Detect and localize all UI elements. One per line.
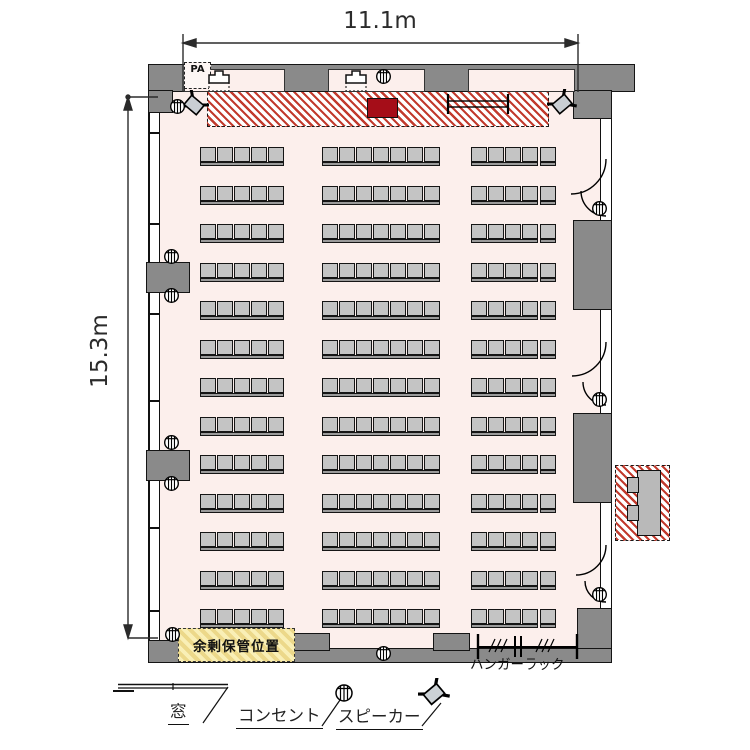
seat [505, 147, 521, 162]
seat [390, 532, 406, 547]
legend-outlet-label: コンセント [236, 702, 323, 729]
seat-table-bar [200, 201, 284, 205]
seat [488, 532, 504, 547]
seat [471, 609, 487, 624]
seat [217, 532, 233, 547]
seat-row-center [322, 186, 440, 205]
seat-row-center [322, 609, 440, 628]
seat [217, 340, 233, 355]
seat [407, 455, 423, 470]
seat [234, 186, 250, 201]
seat-table-bar [540, 393, 556, 397]
seat [390, 378, 406, 393]
seat-row-left [200, 147, 284, 166]
seat [522, 263, 538, 278]
seat [522, 340, 538, 355]
projector-icon [206, 68, 236, 94]
seat [471, 147, 487, 162]
outlet-icon [164, 626, 181, 643]
seat [322, 571, 338, 586]
seat [217, 571, 233, 586]
seat [390, 224, 406, 239]
seat [234, 224, 250, 239]
seat [339, 494, 355, 509]
seat [471, 378, 487, 393]
storage-label: 余剰保管位置 [193, 635, 280, 655]
seat [268, 417, 284, 432]
seat [356, 455, 372, 470]
seat [217, 263, 233, 278]
seat [373, 186, 389, 201]
dimension-width-label: 11.1m [330, 8, 430, 34]
seat [424, 301, 440, 316]
seat-table-bar [471, 278, 538, 282]
seat [390, 571, 406, 586]
seat [471, 571, 487, 586]
seat [522, 417, 538, 432]
seat [488, 609, 504, 624]
seat [390, 340, 406, 355]
legend-window-label: 窓 [168, 698, 189, 725]
seat-row-center [322, 417, 440, 436]
seat [322, 532, 338, 547]
seat-table-bar [322, 509, 440, 513]
seat [339, 532, 355, 547]
seat-table-bar [322, 432, 440, 436]
seat [471, 417, 487, 432]
seat [200, 340, 216, 355]
seat-row-right [471, 186, 556, 205]
outlet-icon [163, 434, 180, 451]
seat-table-bar [200, 547, 284, 551]
seat [390, 417, 406, 432]
seat [424, 147, 440, 162]
seat [200, 301, 216, 316]
seat [373, 494, 389, 509]
seat [322, 301, 338, 316]
seat [390, 494, 406, 509]
seat [251, 340, 267, 355]
seat [373, 417, 389, 432]
seat-row-left [200, 455, 284, 474]
seat [322, 417, 338, 432]
seat [373, 378, 389, 393]
seat [471, 340, 487, 355]
seat [200, 494, 216, 509]
seat [407, 147, 423, 162]
seat [471, 494, 487, 509]
seat [251, 609, 267, 624]
seat [217, 224, 233, 239]
seat [505, 455, 521, 470]
seat-row-center [322, 571, 440, 590]
seat [322, 224, 338, 239]
seat [407, 378, 423, 393]
seat-row-center [322, 340, 440, 359]
seat-table-bar [200, 586, 284, 590]
seat [200, 455, 216, 470]
seat [488, 494, 504, 509]
seat [505, 609, 521, 624]
seat [424, 224, 440, 239]
seat [268, 532, 284, 547]
seat [356, 301, 372, 316]
seat-row-right [471, 224, 556, 243]
seat [522, 147, 538, 162]
seat-table-bar [471, 201, 538, 205]
seat-row-left [200, 417, 284, 436]
seat [471, 186, 487, 201]
seat-row-left [200, 609, 284, 628]
seat-table-bar [200, 278, 284, 282]
seat [356, 224, 372, 239]
seat-row-center [322, 224, 440, 243]
seat [505, 417, 521, 432]
seat-row-right [471, 494, 556, 513]
seat [322, 609, 338, 624]
seat [488, 378, 504, 393]
seat [505, 301, 521, 316]
seat [390, 301, 406, 316]
seat [217, 378, 233, 393]
seat [217, 609, 233, 624]
seat [488, 417, 504, 432]
outlet-icon [169, 98, 186, 115]
seat [471, 455, 487, 470]
seat [200, 378, 216, 393]
seat [339, 571, 355, 586]
seat [373, 301, 389, 316]
seat-row-right [471, 532, 556, 551]
seat-row-left [200, 301, 284, 320]
seat [471, 301, 487, 316]
seat-table-bar [540, 586, 556, 590]
seat [200, 417, 216, 432]
seat [505, 378, 521, 393]
seat [424, 455, 440, 470]
seat [488, 340, 504, 355]
legend-speaker-label: スピーカー [336, 703, 423, 730]
seat [268, 609, 284, 624]
seat [390, 147, 406, 162]
seat [488, 263, 504, 278]
seat [322, 340, 338, 355]
seat-row-center [322, 455, 440, 474]
storage-area: 余剰保管位置 [178, 628, 295, 662]
seat [407, 532, 423, 547]
seat [522, 186, 538, 201]
seat [234, 417, 250, 432]
seat [200, 571, 216, 586]
seat [268, 571, 284, 586]
seat [356, 494, 372, 509]
hanger-rack-tab [627, 477, 639, 493]
seat [540, 532, 556, 547]
seat [268, 147, 284, 162]
seat [268, 263, 284, 278]
seat [251, 186, 267, 201]
outlet-icon [375, 645, 392, 662]
seat-row-right [471, 609, 556, 628]
hanger-rack-tab [627, 505, 639, 521]
seat [234, 571, 250, 586]
seat [339, 147, 355, 162]
seat [424, 417, 440, 432]
seat [339, 417, 355, 432]
seat [356, 147, 372, 162]
seat [373, 340, 389, 355]
seat-table-bar [471, 393, 538, 397]
outlet-icon [375, 68, 392, 85]
seat [217, 455, 233, 470]
seat-table-bar [200, 509, 284, 513]
seat-table-bar [540, 201, 556, 205]
seat [322, 378, 338, 393]
seat [424, 494, 440, 509]
seat [540, 147, 556, 162]
seat [200, 263, 216, 278]
seat [234, 147, 250, 162]
seat-row-left [200, 263, 284, 282]
seat [488, 571, 504, 586]
seat [407, 340, 423, 355]
seat [540, 609, 556, 624]
seat [505, 224, 521, 239]
projector-icon [343, 68, 373, 94]
seat-table-bar [540, 547, 556, 551]
seat [540, 301, 556, 316]
seat [268, 378, 284, 393]
seat [488, 224, 504, 239]
seat-table-bar [540, 355, 556, 359]
seat-table-bar [471, 547, 538, 551]
seat [540, 224, 556, 239]
seat [268, 340, 284, 355]
seat [505, 186, 521, 201]
seat [268, 186, 284, 201]
seat [234, 263, 250, 278]
dimension-height-label: 15.3m [87, 304, 113, 398]
seat [424, 340, 440, 355]
seat [540, 571, 556, 586]
hanger-rack [637, 470, 661, 536]
seat-table-bar [471, 316, 538, 320]
seat-table-bar [540, 316, 556, 320]
seat-row-right [471, 263, 556, 282]
seat-table-bar [540, 509, 556, 513]
seat-table-bar [471, 355, 538, 359]
seat [268, 455, 284, 470]
seat [356, 532, 372, 547]
seat-table-bar [540, 239, 556, 243]
floor-plan: PA 余剰保管位置 [0, 0, 750, 750]
seat-table-bar [471, 624, 538, 628]
seat [217, 494, 233, 509]
seat-table-bar [471, 509, 538, 513]
seat-row-left [200, 571, 284, 590]
seat-table-bar [322, 162, 440, 166]
seat-row-center [322, 147, 440, 166]
seat [373, 455, 389, 470]
seat [251, 571, 267, 586]
seat [200, 186, 216, 201]
seat [407, 494, 423, 509]
seat [356, 609, 372, 624]
seat [234, 378, 250, 393]
seat [217, 301, 233, 316]
pa-label: PA [190, 64, 204, 75]
seat [234, 494, 250, 509]
seat [322, 263, 338, 278]
seat [424, 263, 440, 278]
seat-table-bar [540, 278, 556, 282]
seat [488, 186, 504, 201]
seat-row-left [200, 224, 284, 243]
seat [251, 378, 267, 393]
seat [390, 186, 406, 201]
seat [505, 340, 521, 355]
seat [251, 263, 267, 278]
seat [234, 301, 250, 316]
seat-table-bar [540, 470, 556, 474]
seat-row-left [200, 494, 284, 513]
seat [268, 301, 284, 316]
seat [339, 263, 355, 278]
seat-row-right [471, 340, 556, 359]
seat [424, 609, 440, 624]
seat-row-right [471, 417, 556, 436]
seat [505, 571, 521, 586]
outlet-icon [163, 248, 180, 265]
seat [373, 147, 389, 162]
seat [505, 532, 521, 547]
seat [522, 455, 538, 470]
seat [407, 263, 423, 278]
seat [339, 609, 355, 624]
seat [540, 186, 556, 201]
seat-row-center [322, 263, 440, 282]
outlet-icon [163, 287, 180, 304]
outlet-icon [591, 391, 608, 408]
seat [390, 455, 406, 470]
seat-table-bar [200, 316, 284, 320]
seat [540, 417, 556, 432]
seat [339, 224, 355, 239]
seat [356, 571, 372, 586]
seat-row-right [471, 301, 556, 320]
seat-table-bar [540, 162, 556, 166]
seat-table-bar [200, 162, 284, 166]
seat [200, 147, 216, 162]
seat [407, 224, 423, 239]
seat [339, 186, 355, 201]
seat [200, 609, 216, 624]
seat-row-center [322, 494, 440, 513]
seat [407, 186, 423, 201]
seat [407, 301, 423, 316]
seat [540, 340, 556, 355]
seat-row-center [322, 532, 440, 551]
seat [471, 263, 487, 278]
seat-table-bar [200, 393, 284, 397]
legend-outlet-icon [334, 683, 354, 703]
seat-table-bar [200, 355, 284, 359]
seat [251, 494, 267, 509]
seat-row-right [471, 378, 556, 397]
seat [373, 224, 389, 239]
seat [356, 417, 372, 432]
seat [251, 532, 267, 547]
seat [268, 494, 284, 509]
seat-row-left [200, 378, 284, 397]
seat [234, 609, 250, 624]
seat-table-bar [471, 162, 538, 166]
seat-table-bar [322, 586, 440, 590]
seat [390, 263, 406, 278]
seat [251, 147, 267, 162]
seat [268, 224, 284, 239]
seat [356, 340, 372, 355]
seat [251, 455, 267, 470]
seat-row-right [471, 571, 556, 590]
seat-row-left [200, 532, 284, 551]
seat-table-bar [200, 470, 284, 474]
seat-table-bar [322, 355, 440, 359]
seat-table-bar [471, 586, 538, 590]
seat [373, 571, 389, 586]
seat [234, 340, 250, 355]
seat [522, 609, 538, 624]
seat-table-bar [322, 393, 440, 397]
seat [217, 147, 233, 162]
seat [505, 494, 521, 509]
seat-table-bar [540, 624, 556, 628]
seat [488, 301, 504, 316]
seat [522, 571, 538, 586]
seat [373, 609, 389, 624]
seat-table-bar [471, 432, 538, 436]
seat [522, 532, 538, 547]
seat [540, 378, 556, 393]
seat [424, 571, 440, 586]
seat-table-bar [322, 239, 440, 243]
seat [234, 532, 250, 547]
seat [217, 186, 233, 201]
seat-row-left [200, 186, 284, 205]
seat [373, 532, 389, 547]
seat [356, 378, 372, 393]
seat [356, 263, 372, 278]
seat [407, 571, 423, 586]
seat [322, 455, 338, 470]
seat [339, 378, 355, 393]
seat [339, 301, 355, 316]
seat-row-right [471, 455, 556, 474]
seat [322, 186, 338, 201]
seat [522, 378, 538, 393]
seat [251, 224, 267, 239]
seat-table-bar [200, 432, 284, 436]
seat-row-center [322, 301, 440, 320]
seat [339, 340, 355, 355]
seat [322, 147, 338, 162]
seat-table-bar [322, 624, 440, 628]
seat [200, 224, 216, 239]
seat [424, 378, 440, 393]
seat-table-bar [471, 239, 538, 243]
seat [217, 417, 233, 432]
outlet-icon [591, 200, 608, 217]
